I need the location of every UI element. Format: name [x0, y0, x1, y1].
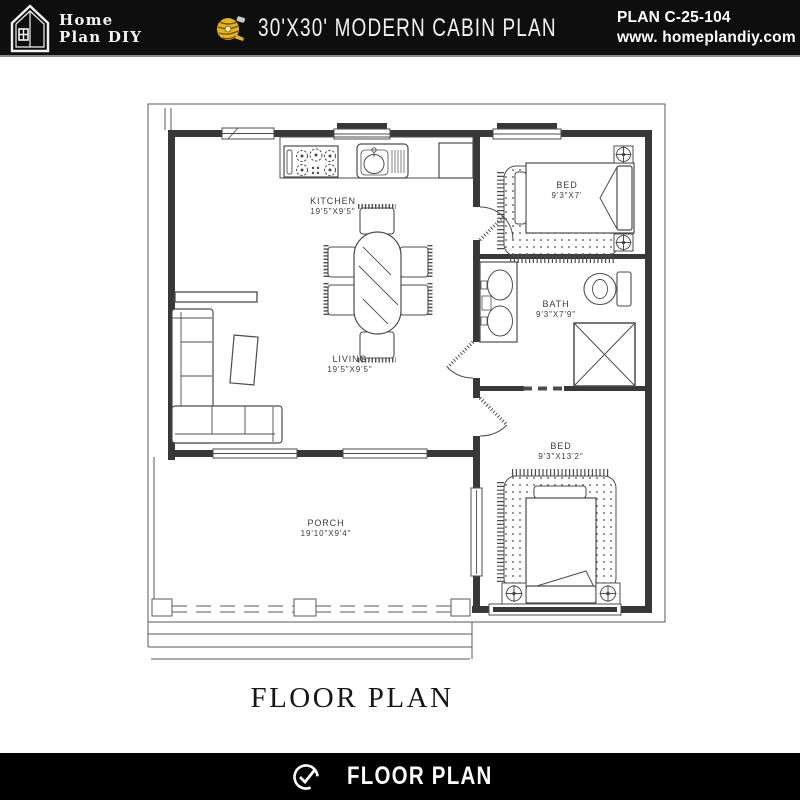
bath-size: 9'3"X7'9" [536, 310, 576, 319]
kitchen-size: 19'5"X9'5" [310, 207, 355, 216]
dining-set [326, 207, 430, 361]
toilet-icon [584, 272, 631, 306]
living-label: LIVING [333, 354, 368, 364]
porch-size: 19'10"X9'4" [301, 529, 352, 538]
bed1-label: BED [556, 180, 577, 190]
fridge-icon [439, 143, 473, 178]
stove-icon [284, 146, 338, 177]
bed1-size: 9'3"X7' [552, 191, 583, 200]
kitchen-label: KITCHEN [310, 196, 356, 206]
footer-label: FLOOR PLAN [347, 762, 493, 791]
shower-icon [574, 323, 635, 386]
kitchen-counter [280, 137, 473, 178]
headboard [526, 586, 596, 603]
bath-label: BATH [543, 299, 570, 309]
bed2-size: 9'3"X13'2" [538, 452, 583, 461]
pillow [515, 172, 526, 224]
sink-icon [357, 144, 408, 178]
bedroom-1 [501, 146, 635, 260]
pillow [534, 486, 586, 498]
coffee-table [230, 335, 258, 385]
floor-plan-drawing: KITCHEN 19'5"X9'5" LIVING 19'5"X9'5" BED… [0, 0, 800, 800]
check-circle-icon [292, 763, 320, 791]
living-size: 19'5"X9'5" [327, 365, 372, 374]
living-furniture [172, 309, 282, 443]
bathroom [480, 262, 635, 386]
bed2-label: BED [550, 441, 571, 451]
footer-bar: FLOOR PLAN [0, 753, 800, 800]
wall-stub [175, 292, 257, 302]
dining-table [354, 232, 401, 334]
porch-label: PORCH [307, 518, 344, 528]
headboard [617, 166, 632, 230]
caption-floor-plan: FLOOR PLAN [250, 682, 453, 715]
bedroom-2 [501, 473, 621, 605]
